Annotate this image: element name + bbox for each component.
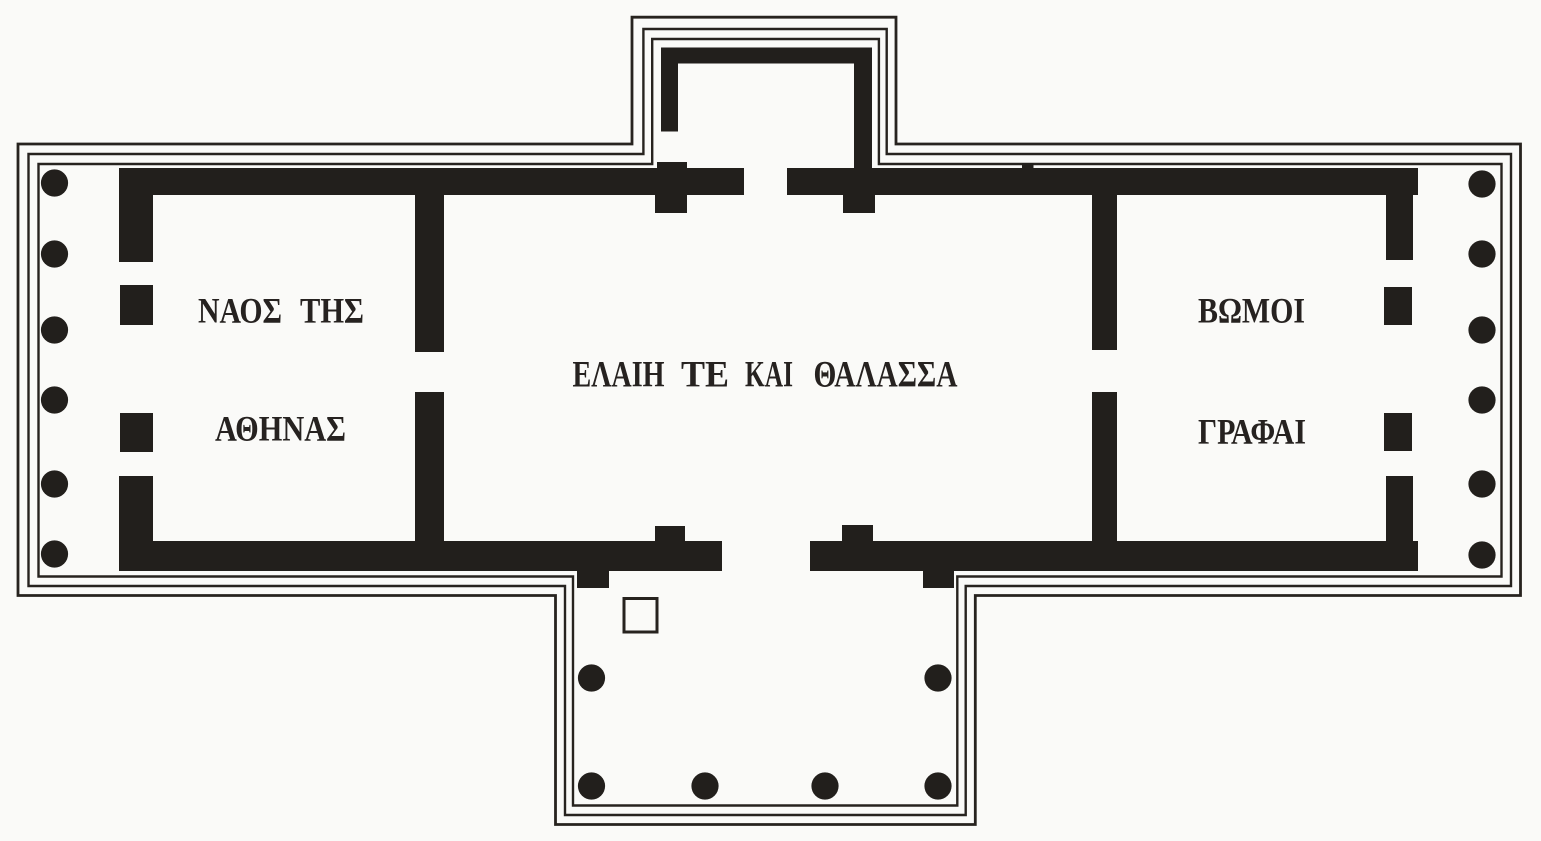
- svg-text:ΤΕ: ΤΕ: [681, 355, 729, 396]
- svg-text:ΕΛΑΙΗ: ΕΛΑΙΗ: [573, 355, 665, 396]
- svg-text:ΑΘΗΝΑΣ: ΑΘΗΝΑΣ: [215, 409, 346, 449]
- svg-text:ΘΑΛΑΣΣΑ: ΘΑΛΑΣΣΑ: [814, 355, 958, 396]
- svg-text:ΒΩΜΟΙ: ΒΩΜΟΙ: [1198, 291, 1305, 331]
- svg-text:ΤΗΣ: ΤΗΣ: [300, 291, 364, 331]
- svg-text:ΓΡΑΦΑΙ: ΓΡΑΦΑΙ: [1198, 412, 1306, 452]
- svg-text:ΚΑΙ: ΚΑΙ: [745, 355, 793, 396]
- svg-text:ΝΑΟΣ: ΝΑΟΣ: [198, 291, 282, 331]
